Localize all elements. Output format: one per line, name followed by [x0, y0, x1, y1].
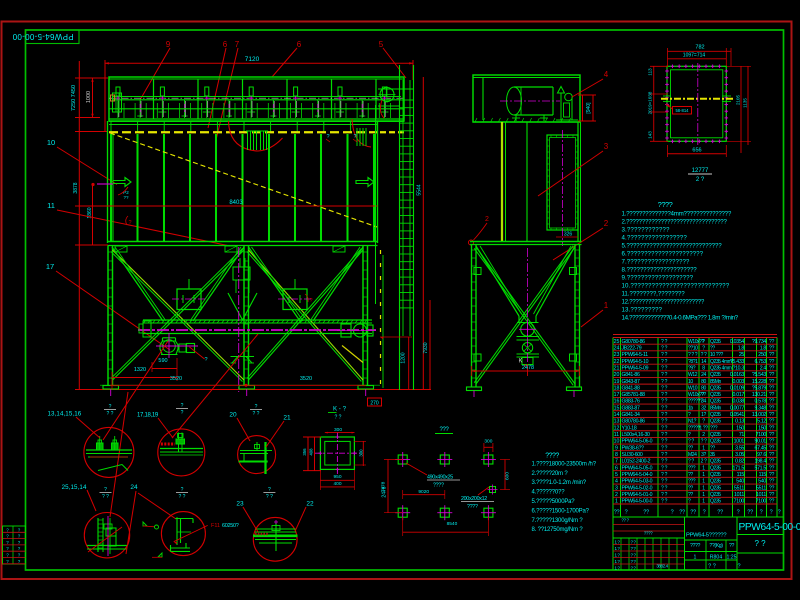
svg-text:11.????????,????????: 11.????????,????????: [622, 291, 686, 298]
svg-text:??: ??: [614, 510, 620, 516]
svg-text:21: 21: [614, 365, 620, 371]
svg-text:?: ?: [181, 487, 184, 493]
svg-text:6.?????1500-1700Pa?: 6.?????1500-1700Pa?: [532, 508, 590, 514]
svg-text:9: 9: [166, 40, 171, 49]
svg-text:??: ??: [769, 345, 775, 351]
svg-text:6.753: 6.753: [755, 359, 767, 365]
svg-text:7.??????????????????: 7.??????????????????: [622, 259, 690, 266]
svg-text:Q235: Q235: [710, 432, 721, 438]
svg-text:?: ?: [737, 510, 740, 516]
svg-text:N1?: N1?: [688, 419, 697, 425]
svg-text:??: ??: [769, 412, 775, 418]
svg-text:15.228: 15.228: [752, 379, 766, 385]
svg-text:?: ?: [778, 510, 781, 516]
svg-text:21: 21: [283, 415, 291, 422]
svg-text:?: ?: [353, 134, 356, 140]
svg-text:17: 17: [614, 392, 620, 398]
svg-text:?5.543: ?5.543: [752, 372, 766, 378]
svg-text:??10: ??10: [688, 345, 698, 351]
svg-text:1.8: 1.8: [738, 345, 745, 351]
svg-text:782: 782: [695, 45, 704, 51]
svg-text:540: 540: [736, 479, 744, 485]
svg-text:?: ?: [326, 134, 329, 140]
svg-text:60250?: 60250?: [222, 523, 239, 529]
svg-text:0.0109: 0.0109: [730, 385, 744, 391]
svg-text:90.01: 90.01: [755, 439, 767, 445]
svg-text:G80780-86: G80780-86: [622, 419, 646, 425]
svg-text:Q235: Q235: [710, 339, 721, 345]
svg-text:2019=1038: 2019=1038: [648, 91, 653, 114]
svg-text:171.5: 171.5: [733, 465, 745, 471]
svg-text:? ?: ? ?: [630, 559, 636, 564]
svg-text:1b: 1b: [688, 405, 693, 411]
svg-text:23: 23: [236, 501, 244, 508]
svg-text:?: ?: [181, 410, 184, 416]
svg-text:15: 15: [614, 405, 620, 411]
svg-text:8.?????????????????????: 8.?????????????????????: [622, 267, 698, 274]
svg-text:3520: 3520: [170, 376, 182, 382]
svg-text:20: 20: [229, 412, 237, 419]
svg-text:1001: 1001: [734, 439, 745, 445]
svg-text:7250 7450: 7250 7450: [71, 85, 77, 111]
svg-text:1?: 1?: [701, 412, 706, 418]
svg-text:? ?: ? ?: [630, 540, 636, 545]
svg-text:??: ??: [717, 510, 723, 516]
svg-text:4: 4: [604, 70, 609, 79]
svg-text:115: 115: [737, 472, 745, 478]
svg-text:600: 600: [505, 472, 511, 480]
svg-text:6: 6: [223, 40, 228, 49]
svg-text:300: 300: [484, 439, 492, 445]
svg-text:Q235: Q235: [710, 485, 721, 491]
svg-text:? ?: ? ?: [630, 546, 636, 551]
svg-text:250: 250: [758, 352, 766, 358]
svg-text:6.??????????????????????: 6.??????????????????????: [622, 251, 704, 258]
svg-text:?10.3: ?10.3: [733, 365, 745, 371]
svg-text:? ?: ? ?: [661, 345, 668, 351]
svg-text:13: 13: [614, 419, 620, 425]
svg-text:0.578: 0.578: [755, 399, 767, 405]
svg-text:??: ??: [701, 392, 706, 398]
svg-text:7930: 7930: [423, 342, 429, 353]
svg-text:0.038: 0.038: [733, 399, 745, 405]
svg-text:??: ??: [769, 359, 775, 365]
svg-text:400: 400: [333, 481, 341, 487]
svg-text:6: 6: [297, 40, 302, 49]
svg-text:? ?: ? ?: [661, 379, 668, 385]
svg-text:9.348: 9.348: [755, 405, 767, 411]
svg-text:1000: 1000: [86, 91, 92, 103]
svg-text:7: 7: [615, 459, 618, 465]
svg-text:? ?: ? ?: [661, 485, 668, 491]
svg-text:9.???????????????????: 9.???????????????????: [622, 275, 694, 282]
svg-text:14: 14: [614, 412, 620, 418]
svg-text:? ?: ? ?: [661, 479, 668, 485]
svg-text:??: ??: [679, 510, 685, 516]
svg-text:22: 22: [306, 501, 314, 508]
svg-text:7120: 7120: [245, 56, 260, 63]
svg-text:?: ?: [703, 510, 706, 516]
svg-text:JB222-79: JB222-79: [622, 345, 642, 351]
svg-text:? ?: ? ?: [253, 411, 260, 417]
svg-text:0.0354: 0.0354: [730, 339, 744, 345]
svg-text:2 ?: 2 ?: [696, 177, 705, 183]
svg-text:490x490x25: 490x490x25: [427, 475, 453, 481]
svg-text:14.?????????????0.4-0.6MPa???: 14.?????????????0.4-0.6MPa??? 1.8m ?/min…: [622, 315, 739, 322]
svg-text:??(Kg): ??(Kg): [709, 543, 723, 549]
svg-text:??: ??: [769, 405, 775, 411]
svg-text:??: ??: [769, 459, 775, 465]
svg-text:3: 3: [615, 485, 618, 491]
svg-text:??: ??: [688, 485, 693, 491]
svg-text:???: ???: [688, 465, 696, 471]
svg-text:Q235: Q235: [710, 492, 721, 498]
svg-text:??: ??: [729, 543, 734, 549]
svg-text:7100: 7100: [734, 499, 745, 505]
svg-text:71: 71: [739, 432, 745, 438]
svg-text:Q235: Q235: [710, 419, 721, 425]
svg-text:?: ?: [737, 564, 740, 570]
svg-text:3?: 3?: [701, 452, 706, 458]
svg-text:? ?: ? ?: [661, 439, 668, 445]
svg-text:? ?: ? ?: [661, 352, 668, 358]
svg-text:Q235: Q235: [710, 439, 721, 445]
svg-text:??: ??: [769, 425, 775, 431]
svg-text:1.8: 1.8: [760, 345, 767, 351]
svg-text:? ?: ? ?: [708, 564, 716, 570]
svg-text:??: ??: [769, 379, 775, 385]
svg-text:??: ??: [688, 492, 693, 498]
svg-text:Q235: Q235: [710, 472, 721, 478]
svg-text:0.82: 0.82: [735, 459, 744, 465]
svg-text:? ?: ? ?: [661, 359, 668, 365]
svg-text:F11: F11: [211, 523, 220, 529]
svg-text:PPW64-5-06-0: PPW64-5-06-0: [622, 439, 653, 445]
svg-text:PPW64-5-09: PPW64-5-09: [622, 365, 649, 371]
svg-text:? ? ?: ? ? ?: [688, 352, 698, 358]
svg-text:Q235: Q235: [710, 372, 721, 378]
svg-text:2 ?: 2 ?: [701, 459, 707, 465]
svg-text:??: ??: [690, 510, 696, 516]
svg-text:150: 150: [758, 425, 766, 431]
svg-text:? ?: ? ?: [661, 412, 668, 418]
svg-text:85Mn: 85Mn: [710, 379, 722, 385]
svg-text:13,14,15,16: 13,14,15,16: [48, 411, 82, 418]
svg-text:270: 270: [370, 401, 379, 407]
svg-text:3.????1.0-1.2m /min?: 3.????1.0-1.2m /min?: [532, 480, 587, 486]
svg-text:3520: 3520: [300, 376, 312, 382]
svg-text:?9?: ?9?: [688, 365, 696, 371]
svg-text:G883-76: G883-76: [622, 399, 641, 405]
svg-text:Q235 4mm: Q235 4mm: [710, 359, 732, 365]
svg-text:? ?: ? ?: [630, 566, 636, 571]
svg-text:3.55: 3.55: [735, 445, 744, 451]
svg-text:? ?: ? ?: [630, 553, 636, 558]
svg-text:G85781-88: G85781-88: [622, 392, 646, 398]
svg-text:1 ?: 1 ?: [614, 559, 620, 564]
svg-text:??: ??: [769, 472, 775, 478]
svg-text:PPW64-5-04-0: PPW64-5-04-0: [622, 472, 653, 478]
svg-text:??: ??: [747, 510, 753, 516]
svg-text:540: 540: [758, 479, 766, 485]
svg-text:??: ??: [688, 472, 693, 478]
svg-text:3878: 3878: [73, 182, 79, 193]
svg-text:G841-88: G841-88: [622, 385, 641, 391]
svg-text:5.????????????????????????????: 5.?????????????????????????????: [622, 243, 723, 250]
svg-text:17: 17: [46, 262, 54, 271]
svg-text:12777: 12777: [692, 168, 709, 174]
svg-text:5: 5: [379, 40, 384, 49]
svg-text:16: 16: [614, 399, 620, 405]
svg-text:2: 2: [604, 219, 609, 228]
svg-text:11: 11: [614, 432, 619, 438]
svg-text:? ?: ? ?: [661, 405, 668, 411]
svg-text:? ?: ? ?: [661, 499, 668, 505]
svg-text:Q235: Q235: [710, 459, 721, 465]
svg-text:??: ??: [769, 339, 775, 345]
svg-text:??: ??: [769, 419, 775, 425]
svg-text:13.?????????: 13.?????????: [622, 307, 663, 314]
svg-text:2105: 2105: [736, 94, 741, 105]
svg-text:PPW64-5-11: PPW64-5-11: [622, 352, 649, 358]
svg-text:85Mn: 85Mn: [710, 405, 722, 411]
svg-text:??: ??: [769, 439, 775, 445]
svg-text:W10: W10: [688, 385, 698, 391]
svg-text:??: ??: [769, 372, 775, 378]
svg-text:????: ????: [433, 483, 444, 489]
svg-text:24: 24: [614, 345, 620, 351]
svg-text:9: 9: [615, 445, 618, 451]
svg-text:1: 1: [604, 301, 609, 310]
svg-text:80: 80: [701, 385, 706, 391]
svg-text:2: 2: [615, 492, 618, 498]
svg-text:? ?: ? ?: [688, 439, 694, 445]
svg-text:9020: 9020: [418, 489, 429, 495]
svg-text:300: 300: [334, 427, 342, 433]
svg-text:7: 7: [235, 40, 240, 49]
svg-text:Q235: Q235: [710, 412, 721, 418]
svg-text:32: 32: [701, 405, 706, 411]
svg-text:?: ?: [309, 298, 312, 304]
svg-text:17,18,19: 17,18,19: [137, 413, 159, 419]
svg-text:PPW64-5-03-0: PPW64-5-03-0: [622, 479, 653, 485]
svg-text:25,15,14: 25,15,14: [62, 484, 87, 491]
svg-text:Q235: Q235: [710, 399, 721, 405]
svg-text:23: 23: [614, 352, 620, 358]
svg-text:? ?: ? ?: [661, 472, 668, 478]
svg-text:7100: 7100: [756, 432, 767, 438]
svg-text:3.05: 3.05: [735, 452, 744, 458]
svg-text:7100: 7100: [756, 499, 767, 505]
svg-text:L500x4,16-30: L500x4,16-30: [622, 432, 651, 438]
svg-text:?: ?: [181, 403, 184, 409]
svg-text:35: 35: [710, 452, 715, 458]
svg-text:97.6: 97.6: [757, 452, 766, 458]
svg-text:PPW64-5-10: PPW64-5-10: [622, 359, 649, 365]
svg-text:4.??????0??: 4.??????0??: [532, 490, 566, 496]
svg-text:? ?: ? ?: [661, 419, 668, 425]
svg-text:1320: 1320: [134, 367, 146, 373]
svg-text:? ?: ? ?: [661, 399, 668, 405]
svg-text:R804: R804: [710, 555, 723, 561]
svg-text:??: ??: [769, 499, 775, 505]
svg-text:20: 20: [614, 372, 620, 378]
svg-text:? ?: ? ?: [661, 339, 668, 345]
svg-text:1 ?: 1 ?: [614, 553, 620, 558]
svg-text:? ?: ? ?: [179, 494, 186, 500]
svg-text:13.002: 13.002: [752, 412, 766, 418]
svg-text:34: 34: [701, 399, 706, 405]
svg-text:SU30-600: SU30-600: [622, 452, 643, 458]
svg-text:? ?: ? ?: [754, 539, 766, 548]
svg-text:198.4: 198.4: [755, 459, 767, 465]
svg-text:??: ??: [769, 492, 775, 498]
svg-text:2: 2: [485, 216, 489, 223]
svg-text:408: 408: [309, 448, 314, 456]
svg-text:??: ??: [710, 345, 715, 351]
svg-text:W12: W12: [688, 372, 698, 378]
svg-text:??: ??: [769, 445, 775, 451]
svg-text:PPW64-5-00-00: PPW64-5-00-00: [739, 522, 800, 533]
svg-text:356: 356: [302, 448, 307, 456]
svg-text:3.????????????: 3.????????????: [622, 227, 670, 234]
svg-text:? ?: ? ?: [661, 425, 668, 431]
svg-text:5.12: 5.12: [757, 419, 766, 425]
svg-text:? ?: ? ?: [335, 415, 342, 421]
svg-text:??: ??: [710, 445, 715, 451]
svg-text:3: 3: [604, 142, 609, 151]
svg-text:113: 113: [648, 68, 653, 76]
svg-text:?8?1: ?8?1: [688, 359, 698, 365]
svg-text:? ?: ? ?: [107, 411, 114, 417]
svg-text:10: 10: [47, 138, 55, 147]
svg-text:PW38-6??: PW38-6??: [622, 445, 645, 451]
svg-text:Q235: Q235: [710, 392, 721, 398]
svg-text:G80780-86: G80780-86: [622, 339, 646, 345]
svg-text:Q235: Q235: [710, 465, 721, 471]
svg-text:7.?????1300g/Nm ?: 7.?????1300g/Nm ?: [532, 518, 584, 524]
svg-text:? ?: ? ?: [661, 459, 668, 465]
svg-text:? ?: ? ?: [701, 439, 707, 445]
svg-text:??: ??: [769, 432, 775, 438]
svg-text:PPW64-5??????: PPW64-5??????: [686, 533, 727, 539]
svg-text:8. ??12750mg/Nm ?: 8. ??12750mg/Nm ?: [532, 527, 584, 533]
svg-text:??: ??: [769, 365, 775, 371]
svg-text:1097=714: 1097=714: [683, 53, 706, 59]
svg-text:G841-34: G841-34: [622, 412, 641, 418]
svg-text:326: 326: [564, 232, 573, 238]
svg-text:12: 12: [614, 425, 620, 431]
svg-text:??: ??: [769, 392, 775, 398]
svg-text:1 ?: 1 ?: [614, 566, 620, 571]
svg-text:?: ?: [255, 404, 258, 410]
svg-text:?5.433: ?5.433: [730, 359, 744, 365]
svg-text:??: ??: [643, 510, 649, 516]
svg-text:??: ??: [769, 399, 775, 405]
svg-text:? ?: ? ?: [102, 494, 109, 500]
svg-text:1011: 1011: [734, 492, 744, 498]
svg-text:4.?????????????????: 4.?????????????????: [622, 235, 688, 242]
svg-text:0.13: 0.13: [735, 419, 744, 425]
svg-text:?? ?: ?? ?: [621, 518, 629, 523]
svg-text:PPW64-5-05-0: PPW64-5-05-0: [622, 465, 653, 471]
svg-text:58-814: 58-814: [675, 108, 689, 113]
svg-text:10: 10: [614, 439, 620, 445]
svg-text:5544: 5544: [417, 184, 423, 195]
svg-text:1:25: 1:25: [726, 555, 736, 561]
svg-text:????: ????: [545, 453, 559, 460]
svg-text:? ?: ? ?: [661, 365, 668, 371]
svg-text:6: 6: [615, 465, 618, 471]
svg-text:????: ????: [690, 543, 700, 549]
svg-text:10.???????????????????????????: 10.????????????????????????????: [622, 283, 730, 290]
svg-text:? ?: ? ?: [661, 432, 668, 438]
svg-text:8403: 8403: [229, 200, 243, 206]
svg-text:?: ?: [204, 357, 207, 363]
svg-text:1.????18000-23500m /h?: 1.????18000-23500m /h?: [532, 461, 597, 467]
svg-text:200x200x12: 200x200x12: [461, 496, 487, 502]
svg-text:300: 300: [358, 449, 363, 457]
svg-text:10 ???: 10 ???: [710, 352, 724, 358]
svg-text:18: 18: [614, 385, 620, 391]
svg-text:130.21: 130.21: [752, 392, 766, 398]
svg-text:80: 80: [701, 379, 706, 385]
svg-text:22: 22: [614, 359, 620, 365]
svg-text:??: ??: [688, 445, 693, 451]
svg-text:8: 8: [615, 452, 618, 458]
svg-text:1 ?: 1 ?: [614, 540, 620, 545]
svg-text:143: 143: [648, 131, 653, 139]
svg-text:2.????????????????????????????: 2.????????????????????????????????: [622, 219, 728, 226]
svg-text:0.003: 0.003: [733, 379, 745, 385]
svg-text:150: 150: [736, 425, 744, 431]
svg-text:[940]: [940]: [586, 102, 592, 114]
svg-text:??: ??: [769, 385, 775, 391]
svg-text:2.?????20m ?: 2.?????20m ?: [532, 471, 569, 477]
svg-text:? ?: ? ?: [688, 459, 694, 465]
svg-text:5511: 5511: [734, 485, 744, 491]
svg-text:19: 19: [614, 379, 620, 385]
svg-text:25: 25: [614, 339, 620, 345]
svg-text:1.??????????????4mm???????????: 1.??????????????4mm???????????????: [622, 211, 732, 218]
svg-text:PPW64-5-00-0: PPW64-5-00-0: [622, 499, 653, 505]
svg-text:??: ??: [769, 352, 775, 358]
svg-text:2.4: 2.4: [760, 365, 767, 371]
svg-text:24: 24: [701, 372, 706, 378]
svg-text:? ?: ? ?: [661, 465, 668, 471]
svg-text:???: ???: [710, 425, 718, 431]
svg-text:Q235 4mm: Q235 4mm: [710, 365, 732, 371]
svg-text:?: ?: [128, 220, 131, 226]
svg-text:???: ???: [439, 427, 449, 433]
svg-text:Q235: Q235: [710, 499, 721, 505]
svg-text:8540: 8540: [447, 521, 458, 527]
svg-text:67.45: 67.45: [755, 445, 767, 451]
svg-text:24: 24: [130, 484, 138, 491]
svg-text:PPW64-5-01-0: PPW64-5-01-0: [622, 492, 653, 498]
svg-text:Q235: Q235: [710, 385, 721, 391]
svg-text:0.017: 0.017: [733, 392, 745, 398]
svg-text:G883-87: G883-87: [622, 405, 641, 411]
svg-text:? ?: ? ?: [701, 352, 707, 358]
svg-text:??: ??: [769, 452, 775, 458]
svg-text:950: 950: [333, 474, 341, 480]
svg-text:14: 14: [701, 359, 706, 365]
svg-text:?: ?: [770, 510, 773, 516]
svg-text:2478: 2478: [522, 365, 534, 371]
svg-text:1011: 1011: [756, 492, 766, 498]
svg-text:1: 1: [694, 555, 697, 561]
